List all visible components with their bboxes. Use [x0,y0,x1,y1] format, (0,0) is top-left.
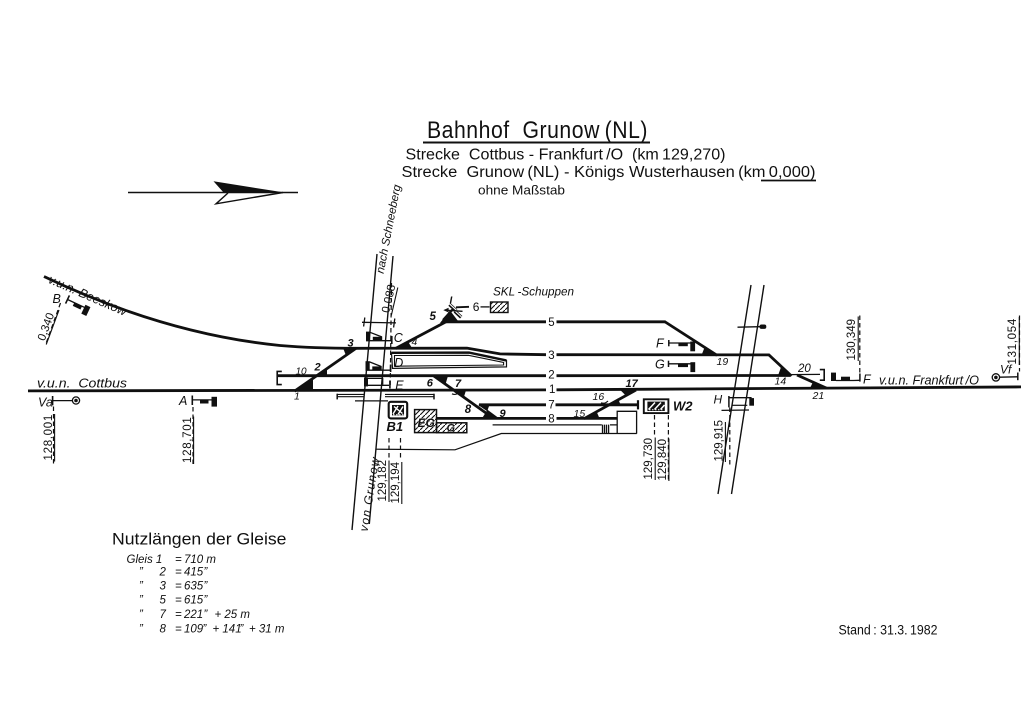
svg-text:A: A [178,394,187,408]
svg-text:15: 15 [574,408,586,420]
svg-text:SKL -Schuppen: SKL -Schuppen [493,285,574,299]
svg-text:128,001: 128,001 [43,414,55,460]
svg-text:D: D [394,356,403,370]
svg-text:W2: W2 [673,398,693,413]
svg-text:”8=109”+ 141”+ 31 m: ”8=109”+ 141”+ 31 m [139,624,285,636]
svg-text:C: C [394,331,404,345]
svg-text:Va: Va [38,395,53,409]
svg-text:10: 10 [296,366,308,377]
svg-text:131,054: 131,054 [1007,318,1019,364]
svg-text:6: 6 [473,300,480,314]
svg-text:1: 1 [294,391,300,403]
svg-text:8: 8 [465,404,472,416]
svg-text:129,194: 129,194 [390,461,402,503]
svg-text:E: E [395,378,404,392]
svg-text:Nutzlängen der Gleise: Nutzlängen der Gleise [112,531,287,549]
svg-text:Strecke Grunow (NL) - Königs: Strecke Grunow (NL) - Königs Wusterhause… [402,164,816,181]
svg-text:G: G [655,358,665,372]
svg-text:17: 17 [626,378,639,390]
svg-text:2: 2 [314,362,321,374]
svg-text:4: 4 [412,336,418,348]
svg-text:Bahnhof Grunow (NL): Bahnhof Grunow (NL) [427,117,648,144]
svg-text:129,182: 129,182 [377,460,389,502]
svg-text:130,349: 130,349 [846,319,858,361]
svg-text:8: 8 [548,413,554,425]
svg-text:EG: EG [418,416,435,430]
svg-text:1: 1 [549,384,555,396]
svg-text:ohne Maßstab: ohne Maßstab [478,183,565,198]
svg-text:I: I [450,296,453,307]
svg-text:B1: B1 [387,419,404,434]
svg-text:v.u.n. Frankfurt /O: v.u.n. Frankfurt /O [879,373,979,388]
svg-text:128,701: 128,701 [182,417,194,463]
svg-text:H: H [714,392,723,406]
svg-text:G: G [447,423,456,435]
svg-text:7: 7 [548,400,554,412]
svg-text:14: 14 [775,375,787,387]
svg-text:3: 3 [548,350,554,362]
svg-text:5: 5 [548,317,554,329]
svg-text:v.u.n. Cottbus: v.u.n. Cottbus [37,376,128,391]
svg-text:20: 20 [797,363,811,375]
svg-text:21: 21 [812,390,825,402]
svg-text:9: 9 [500,408,507,420]
svg-text:3: 3 [348,338,354,350]
svg-text:Strecke Cottbus - Frankfurt /: Strecke Cottbus - Frankfurt /O (km 129,2… [406,147,726,164]
svg-text:129,840: 129,840 [657,439,669,481]
svg-text:19: 19 [717,356,729,368]
svg-text:16: 16 [593,391,605,403]
svg-text:6: 6 [427,377,434,389]
svg-text:129,730: 129,730 [643,438,655,480]
svg-text:2: 2 [548,369,554,381]
svg-text:129,915: 129,915 [714,420,726,462]
svg-text:Stand : 31.3. 1982: Stand : 31.3. 1982 [839,623,938,638]
svg-text:7: 7 [455,378,462,390]
svg-text:5: 5 [430,311,437,323]
